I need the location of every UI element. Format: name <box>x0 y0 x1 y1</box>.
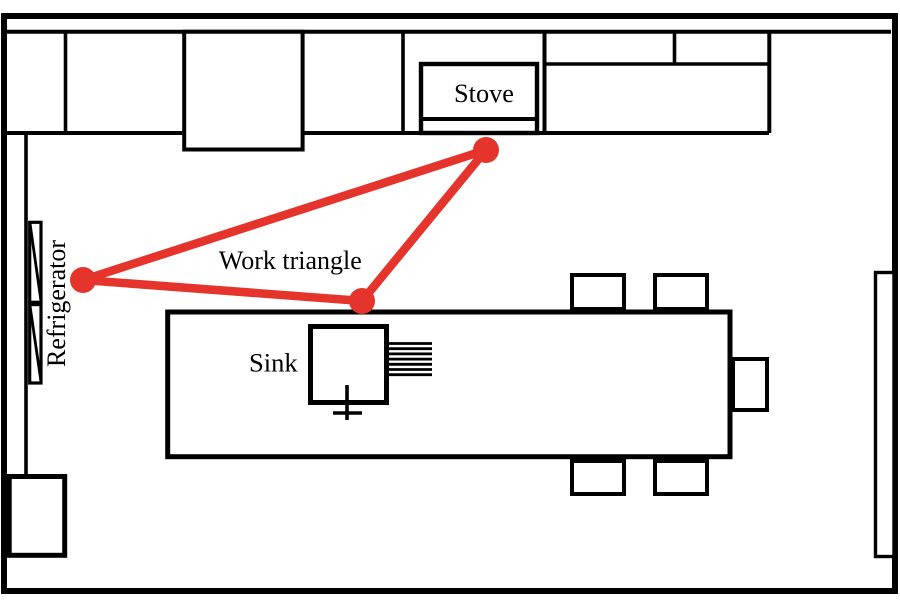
svg-text:Sink: Sink <box>249 348 298 378</box>
svg-text:Refrigerator: Refrigerator <box>42 240 71 367</box>
svg-text:Work triangle: Work triangle <box>219 246 362 275</box>
svg-text:Stove: Stove <box>454 79 514 108</box>
